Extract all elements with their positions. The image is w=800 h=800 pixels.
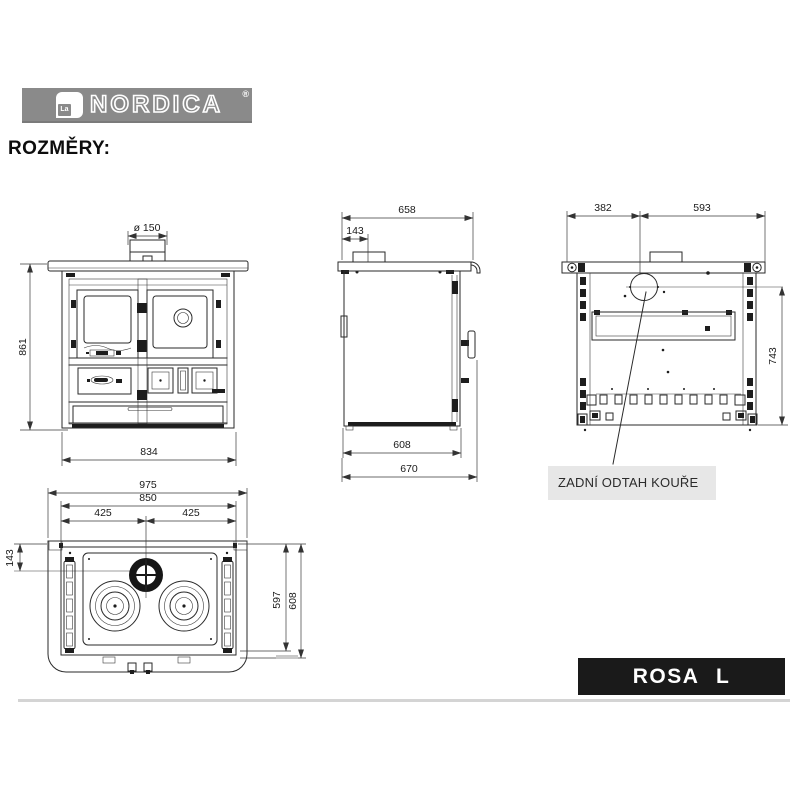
smoke-outlet-callout: ZADNÍ ODTAH KOUŘE (548, 466, 716, 500)
rear-flue-from-left-dim: 382 (594, 202, 612, 214)
side-flue-offset-dim: 143 (346, 225, 364, 237)
front-view: ø 150 861 834 (17, 222, 248, 466)
top-flue-offset-dim: 143 (4, 549, 16, 567)
datasheet-page: La NORDICA ® ROZMĚRY: (0, 0, 800, 800)
model-plate: ROSA L (578, 658, 785, 695)
rear-view: 382 593 743 (562, 202, 788, 464)
front-height-dim: 861 (17, 338, 29, 356)
top-right-half-dim: 425 (182, 507, 200, 519)
rear-flue-height-dim: 743 (767, 347, 779, 365)
side-total-depth-dim: 670 (400, 463, 418, 475)
side-top-depth-dim: 658 (398, 204, 416, 216)
side-body-depth-dim: 608 (393, 439, 411, 451)
rear-flue-to-right-dim: 593 (693, 202, 711, 214)
page-rule (18, 699, 790, 702)
top-inner-width-dim: 850 (139, 492, 157, 504)
front-flue-diameter-dim: ø 150 (134, 222, 161, 234)
top-plate-depth-dim: 597 (271, 591, 283, 609)
top-view: 975 850 425 425 143 597 608 (4, 479, 306, 674)
top-total-depth-dim: 608 (287, 592, 299, 610)
top-left-half-dim: 425 (94, 507, 112, 519)
top-total-width-dim: 975 (139, 479, 157, 491)
side-view: 658 143 608 670 (338, 204, 480, 482)
front-width-dim: 834 (140, 446, 158, 458)
